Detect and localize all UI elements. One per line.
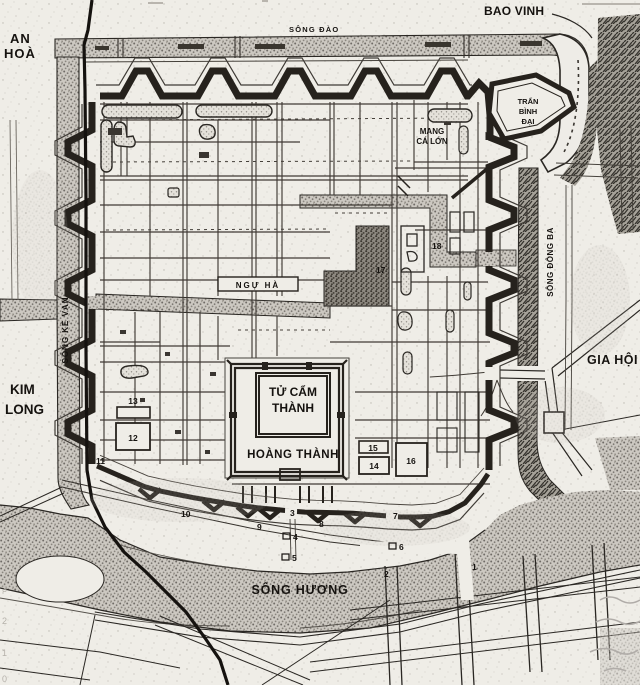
svg-text:10: 10 — [181, 509, 191, 519]
svg-text:3: 3 — [2, 584, 7, 594]
svg-text:4: 4 — [2, 552, 7, 562]
svg-text:SÔNG ĐÔNG BA: SÔNG ĐÔNG BA — [546, 227, 555, 297]
svg-text:SÔNG ĐÀO: SÔNG ĐÀO — [289, 25, 339, 34]
svg-text:AN: AN — [10, 31, 31, 46]
svg-text:GIA HỘI: GIA HỘI — [587, 352, 638, 367]
svg-text:3: 3 — [290, 508, 295, 518]
svg-text:16: 16 — [406, 456, 416, 466]
svg-text:TỬ CẨM: TỬ CẨM — [269, 384, 317, 399]
svg-text:BAO VINH: BAO VINH — [484, 4, 544, 18]
svg-text:KIM: KIM — [10, 382, 35, 397]
svg-text:BÌNH: BÌNH — [519, 107, 537, 116]
svg-text:2: 2 — [384, 569, 389, 579]
svg-text:7: 7 — [393, 511, 398, 521]
svg-text:18: 18 — [432, 241, 442, 251]
svg-text:9: 9 — [257, 522, 262, 532]
svg-text:2: 2 — [2, 616, 7, 626]
svg-text:12: 12 — [128, 433, 138, 443]
svg-text:SÔNG HƯƠNG: SÔNG HƯƠNG — [251, 582, 348, 597]
svg-text:6: 6 — [399, 542, 404, 552]
svg-text:14: 14 — [369, 461, 379, 471]
svg-text:ĐẠI: ĐẠI — [522, 117, 535, 126]
svg-text:11: 11 — [96, 456, 105, 466]
svg-text:NGỰ HÀ: NGỰ HÀ — [236, 281, 280, 290]
svg-text:THÀNH: THÀNH — [272, 400, 314, 415]
svg-text:0: 0 — [2, 674, 7, 684]
svg-text:13: 13 — [128, 396, 138, 406]
svg-text:17: 17 — [376, 265, 386, 275]
svg-text:LONG: LONG — [5, 402, 44, 417]
svg-text:4: 4 — [293, 532, 298, 542]
svg-text:5: 5 — [292, 553, 297, 563]
svg-text:8: 8 — [319, 519, 324, 529]
svg-text:1: 1 — [472, 562, 477, 572]
svg-text:MANG: MANG — [420, 127, 444, 136]
svg-text:HOÀ: HOÀ — [4, 46, 36, 61]
svg-text:CÁ LỚN: CÁ LỚN — [416, 137, 447, 146]
svg-text:HOÀNG THÀNH: HOÀNG THÀNH — [247, 448, 339, 461]
svg-text:SÔNG KẺ VẠN: SÔNG KẺ VẠN — [61, 296, 70, 363]
svg-text:15: 15 — [368, 443, 378, 453]
svg-text:TRẤN: TRẤN — [518, 96, 539, 106]
svg-text:1: 1 — [2, 648, 7, 658]
